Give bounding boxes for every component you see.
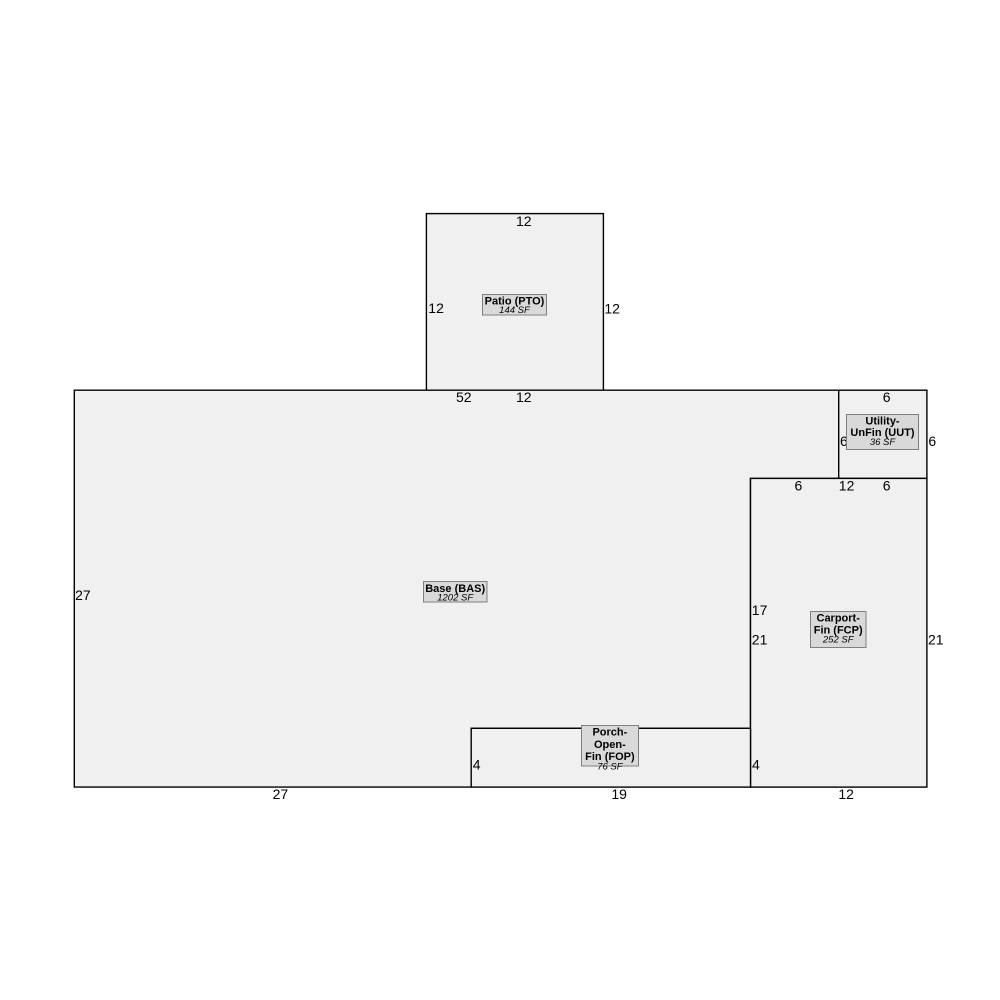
svg-text:6: 6: [883, 389, 891, 405]
svg-text:21: 21: [752, 631, 768, 647]
svg-text:17: 17: [752, 602, 768, 618]
svg-text:27: 27: [273, 786, 289, 802]
svg-text:1202 SF: 1202 SF: [437, 593, 474, 604]
svg-text:252 SF: 252 SF: [822, 634, 855, 645]
svg-text:Open-: Open-: [594, 739, 626, 751]
svg-text:21: 21: [928, 631, 944, 647]
svg-text:Porch-: Porch-: [592, 726, 627, 738]
svg-text:52: 52: [456, 389, 472, 405]
svg-text:4: 4: [752, 756, 760, 772]
svg-text:12: 12: [839, 477, 855, 493]
svg-text:19: 19: [611, 786, 627, 802]
svg-text:12: 12: [604, 300, 620, 316]
svg-text:27: 27: [75, 587, 91, 603]
svg-text:144 SF: 144 SF: [499, 305, 531, 316]
svg-text:12: 12: [428, 300, 444, 316]
svg-text:4: 4: [473, 756, 481, 772]
svg-text:12: 12: [838, 786, 854, 802]
svg-text:6: 6: [928, 433, 936, 449]
svg-text:6: 6: [883, 477, 891, 493]
svg-text:36 SF: 36 SF: [870, 437, 897, 448]
svg-text:6: 6: [795, 477, 803, 493]
svg-text:76 SF: 76 SF: [597, 761, 624, 772]
svg-text:Utility-: Utility-: [865, 415, 900, 427]
svg-text:Carport-: Carport-: [817, 613, 861, 625]
svg-text:12: 12: [516, 213, 532, 229]
svg-text:12: 12: [516, 389, 532, 405]
